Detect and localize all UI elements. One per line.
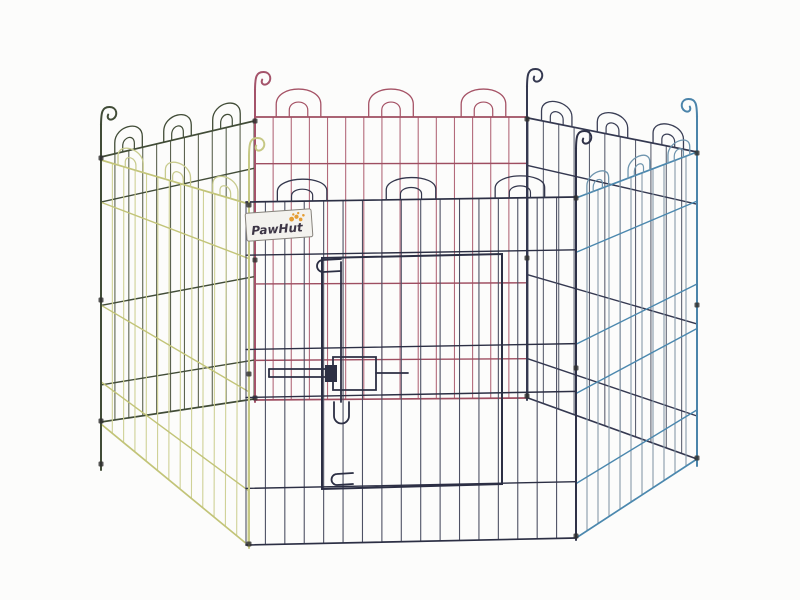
post-scroll-top [527,69,542,88]
latch-box [333,357,376,390]
post-scroll-top [249,138,264,157]
panel-clip [525,394,530,399]
panel-clip [99,156,104,161]
panel-clip [247,542,252,547]
panel-back-right-navy [528,101,697,459]
panel-clip [695,456,700,461]
panel-clip [695,151,700,156]
panel-clip [247,203,252,208]
door-bolt-handle [334,402,349,424]
panel-back-middle-red [255,89,527,400]
playpen-scene [99,69,700,548]
panel-clip [99,462,104,467]
playpen-product-photo: PawHut [0,0,800,600]
panel-clip [247,372,252,377]
post-scroll-top [101,107,116,126]
post-scroll-top [255,72,270,91]
panel-clip [574,534,579,539]
door-top-hinge-loop [317,259,341,272]
panel-front-left-yellow [101,148,249,545]
door-frame [322,254,502,489]
panel-clip [99,298,104,303]
panel-clip [253,119,258,124]
panel-clip [525,117,530,122]
brand-label: PawHut [245,209,313,242]
playpen-illustration: PawHut [0,0,800,600]
panel-clip [253,258,258,263]
panel-clip [525,256,530,261]
panel-clip [574,196,579,201]
post-scroll-top [682,99,697,118]
panel-clip [695,303,700,308]
latch-block [325,365,337,382]
door-bottom-hinge-loop [332,473,354,485]
panel-clip [99,419,104,424]
panel-clip [574,366,579,371]
